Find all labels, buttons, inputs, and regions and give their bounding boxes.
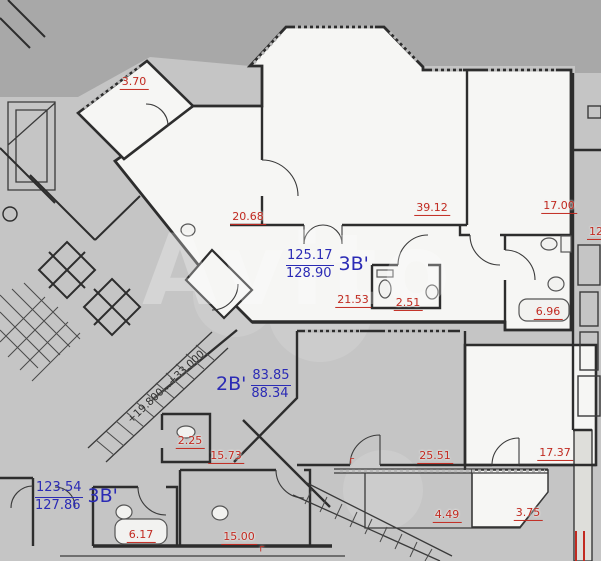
bathtub-icon: [519, 299, 569, 321]
sink-icon: [177, 426, 195, 438]
toilet-icon: [561, 236, 571, 252]
toilet-icon: [541, 238, 557, 250]
floor-plan: Avito +19.800...+33.000 3.7020.6839.1217…: [0, 0, 601, 561]
sink-icon: [426, 285, 438, 299]
floor-plan-drawing: [0, 0, 601, 561]
sink-icon: [116, 505, 132, 519]
sink-icon: [181, 224, 195, 236]
sink-icon: [548, 277, 564, 291]
toilet-icon: [379, 280, 391, 298]
bathtub-icon: [115, 519, 167, 544]
toilet-icon: [377, 270, 393, 277]
sink-icon: [212, 506, 228, 520]
